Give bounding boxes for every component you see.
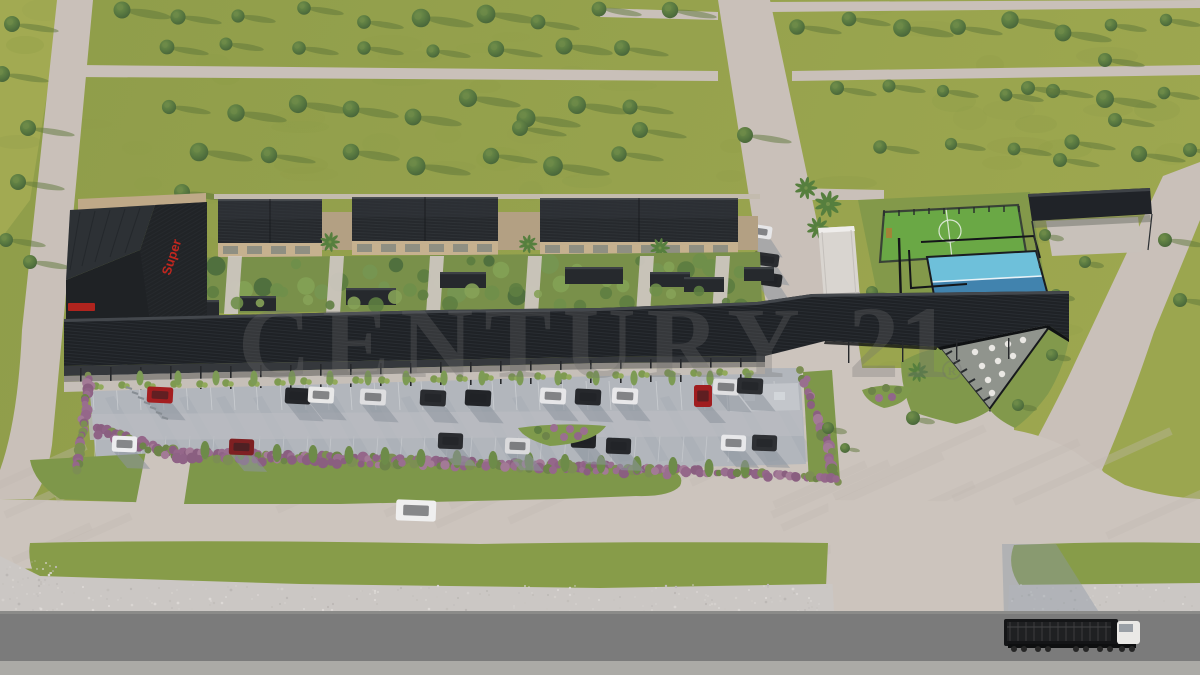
- svg-text:R: R: [948, 364, 957, 378]
- svg-text:CENTURY: CENTURY: [238, 287, 811, 399]
- svg-text:21: 21: [848, 286, 951, 400]
